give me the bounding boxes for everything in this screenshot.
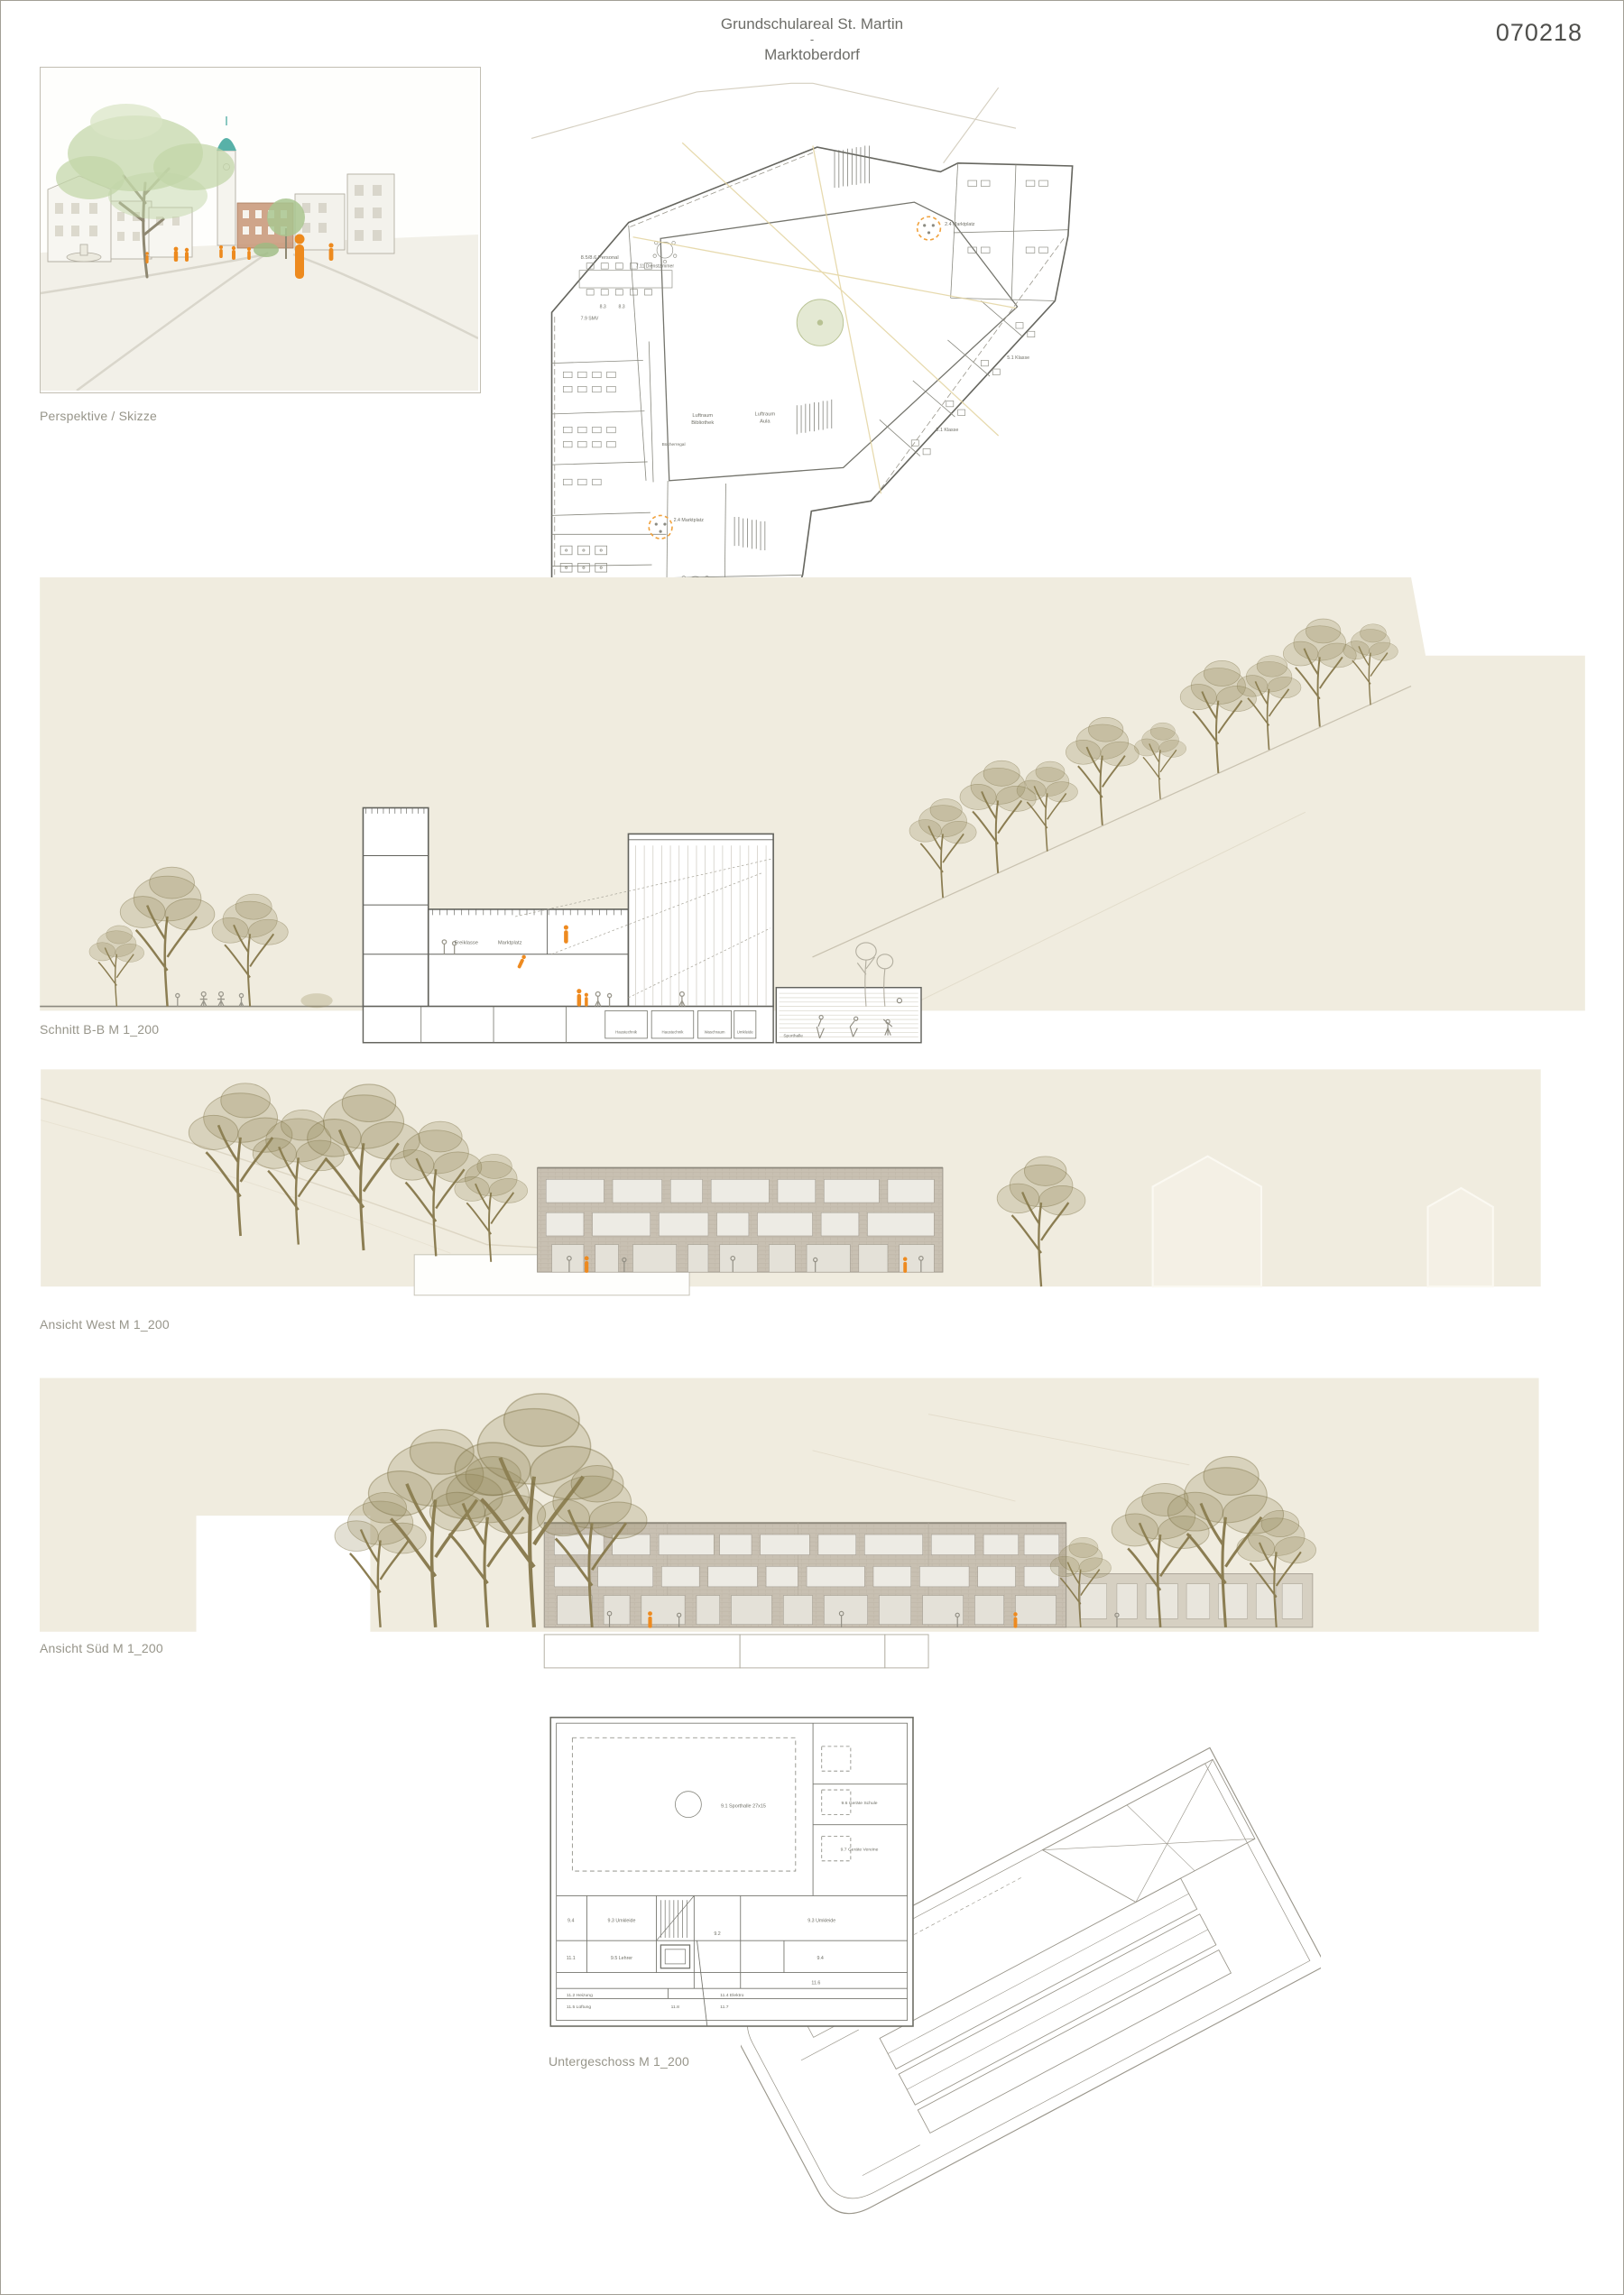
ug-outline (550, 1718, 913, 2026)
room-label: 2.4 Marktplatz (674, 518, 705, 523)
room-label: 2.4 Marktplatz (945, 222, 975, 227)
basement-label: Umkleide (737, 1029, 754, 1034)
entry-code: 070218 (1496, 19, 1582, 47)
basement-label: Waschraum (705, 1029, 725, 1034)
room-label: Bücherregal (662, 442, 686, 447)
perspective-panel (40, 67, 481, 393)
presentation-board: Grundschulareal St. Martin - Marktoberdo… (0, 0, 1624, 2295)
ground-openings (552, 1245, 935, 1272)
windows-row2 (546, 1212, 934, 1236)
room-label: 9.4 (817, 1956, 823, 1961)
room-label: 11.2 Heizung (567, 1993, 593, 1998)
section-bb: Freiklasse Marktplatz Haustechnik Hauste… (40, 570, 1585, 1053)
courtyard-tree (797, 300, 843, 346)
elev-sued (40, 1372, 1585, 1682)
floor-plan-ug: 9.1 Sporthalle 27x15 9.6 Geräte Schule 9… (540, 1709, 961, 2045)
section-label-marktplatz: Marktplatz (498, 941, 522, 946)
site-boundary-lines (531, 83, 1016, 162)
caption-west: Ansicht West M 1_200 (40, 1317, 170, 1332)
room-label: 9.3 Umkleide (807, 1918, 835, 1923)
caption-schnitt: Schnitt B-B M 1_200 (40, 1022, 159, 1037)
room-label: 9.3 Umkleide (608, 1918, 636, 1923)
room-label: 9.5 Lehrer (611, 1956, 632, 1961)
caption-ug: Untergeschoss M 1_200 (549, 2054, 689, 2069)
basement (363, 1007, 773, 1043)
bush (300, 993, 332, 1008)
room-label: Luftraum (692, 413, 713, 419)
room-label: Luftraum (754, 411, 775, 417)
perspective-sketch (41, 68, 478, 391)
room-label: 9.4 (567, 1918, 574, 1923)
room-label: 8.3 (600, 305, 606, 310)
room-label: 5.1 Klasse (937, 428, 959, 433)
room-label: 11.5 Lüftung (567, 2005, 591, 2010)
room-label: 7.11 Dienstzimmer (636, 264, 675, 270)
sporthalle-label: Sporthalle (783, 1033, 803, 1038)
hall-block (628, 834, 773, 1006)
room-label: 8.5/8.6 Personal (581, 255, 619, 261)
west-facade (538, 1168, 943, 1273)
gable-house (1428, 1188, 1493, 1286)
room-label: 11.8 (671, 2005, 680, 2010)
left-block (363, 807, 428, 1006)
windows-row2 (554, 1566, 1058, 1586)
room-label: 9.1 Sporthalle 27x15 (721, 1803, 766, 1809)
basement-outline-boxes (544, 1635, 928, 1668)
room-label: 7.9 SMV (581, 316, 599, 321)
room-label: Bibliothek (691, 420, 714, 426)
floor-plan-og2: 8.5/8.6 Personal 7.11 Dienstzimmer 8.3 8… (524, 73, 1138, 650)
caption-sued: Ansicht Süd M 1_200 (40, 1641, 163, 1655)
section-label-freiklasse: Freiklasse (455, 941, 478, 946)
project-subtitle: Marktoberdorf (721, 46, 903, 64)
project-title: Grundschulareal St. Martin (721, 15, 903, 33)
courtyard-outline (660, 202, 1017, 481)
basement-label: Haustechnik (615, 1029, 638, 1034)
room-label: 9.2 (714, 1931, 720, 1937)
room-label: 9.6 Geräte Schule (841, 1801, 877, 1806)
room-label: Aula (760, 419, 770, 425)
elev-west (40, 1064, 1585, 1305)
room-label: 11.1 (567, 1956, 576, 1961)
title-separator: - (721, 33, 903, 46)
room-label: 11.6 (811, 1980, 820, 1986)
sheet-header: Grundschulareal St. Martin - Marktoberdo… (721, 15, 903, 64)
caption-perspective: Perspektive / Skizze (40, 409, 157, 423)
room-label: 11.7 (720, 2005, 729, 2010)
basement-label: Haustechnik (662, 1029, 685, 1034)
room-label: 11.4 Elektro (720, 1993, 743, 1998)
room-label: 5.1 Klasse (1007, 355, 1029, 361)
room-label: 8.3 (618, 305, 624, 310)
room-label: 9.7 Geräte Vereine (841, 1848, 879, 1853)
